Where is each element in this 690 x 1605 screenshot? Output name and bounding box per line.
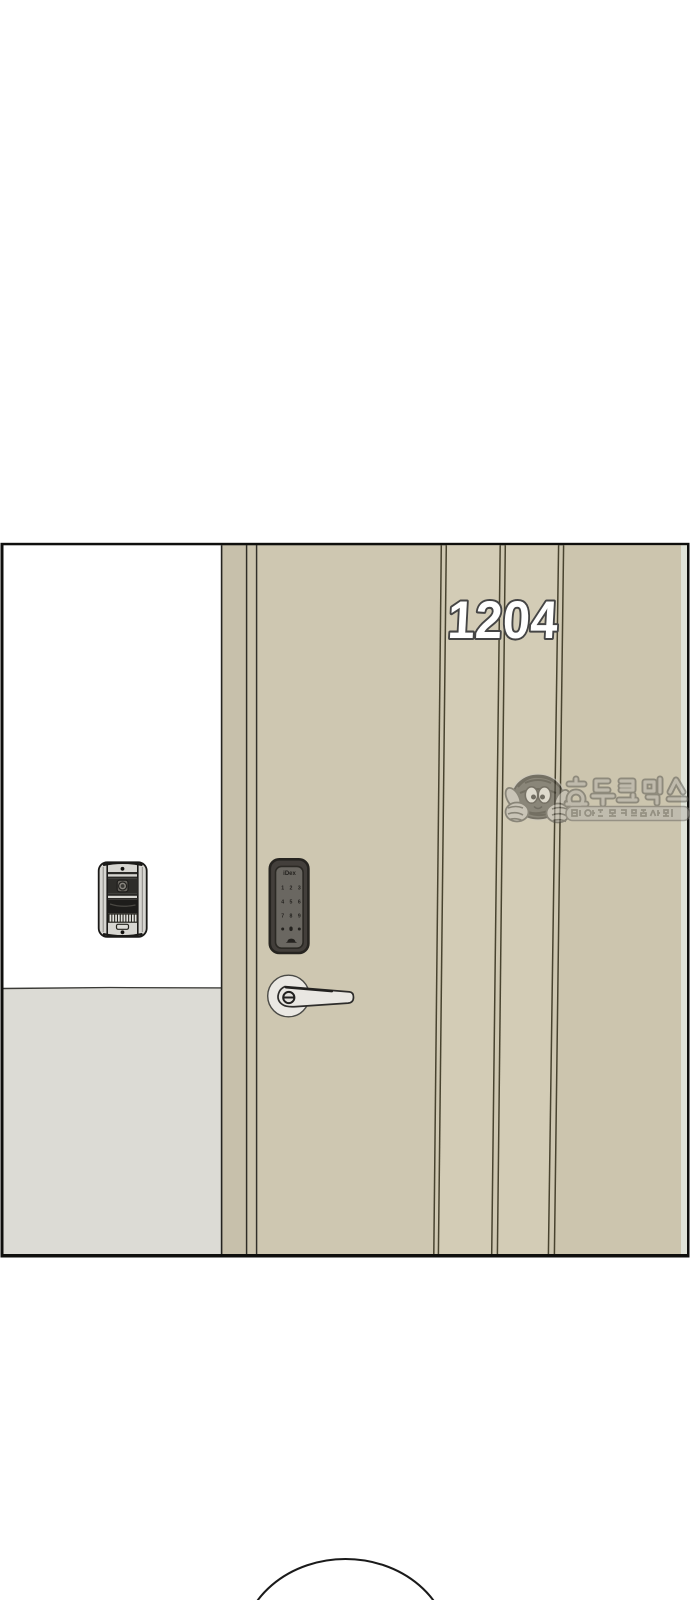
- svg-text:4: 4: [281, 900, 284, 906]
- svg-text:6: 6: [298, 900, 301, 906]
- svg-text:7: 7: [281, 914, 284, 920]
- svg-text:iDex: iDex: [283, 871, 296, 877]
- svg-text:8: 8: [290, 914, 293, 920]
- svg-text:1204: 1204: [446, 590, 560, 649]
- svg-text:2: 2: [290, 886, 293, 892]
- svg-text:9: 9: [298, 914, 301, 920]
- svg-text:5: 5: [290, 900, 293, 906]
- svg-text:1: 1: [281, 886, 284, 892]
- svg-text:3: 3: [298, 886, 301, 892]
